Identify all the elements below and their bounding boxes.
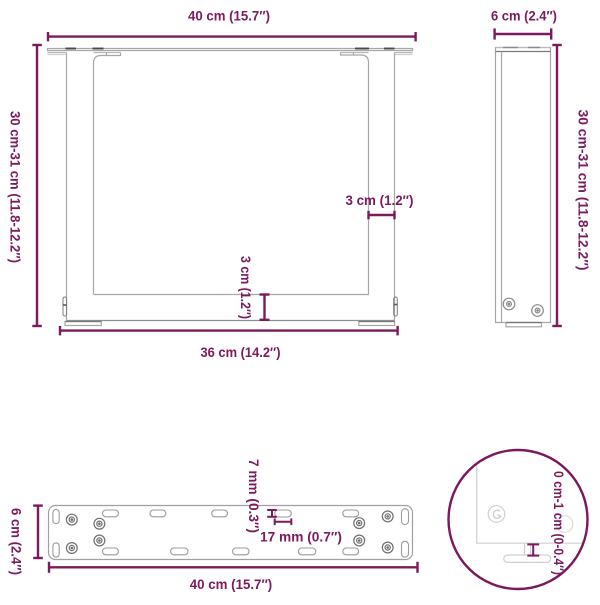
svg-text:40 cm (15.7″): 40 cm (15.7″) bbox=[188, 8, 270, 24]
svg-text:36 cm (14.2″): 36 cm (14.2″) bbox=[201, 344, 281, 360]
svg-text:6 cm (2.4″): 6 cm (2.4″) bbox=[9, 508, 25, 575]
svg-text:30 cm-31 cm (11.8-12.2″): 30 cm-31 cm (11.8-12.2″) bbox=[8, 111, 24, 263]
svg-text:40 cm (15.7″): 40 cm (15.7″) bbox=[190, 576, 273, 592]
svg-text:0 cm-1 cm (0-0.4″): 0 cm-1 cm (0-0.4″) bbox=[551, 471, 567, 575]
svg-text:17 mm (0.7″): 17 mm (0.7″) bbox=[260, 529, 342, 545]
svg-text:3 cm (1.2″): 3 cm (1.2″) bbox=[346, 192, 414, 208]
svg-text:3 cm (1.2″): 3 cm (1.2″) bbox=[238, 256, 254, 319]
svg-text:7 mm (0.3″): 7 mm (0.3″) bbox=[246, 459, 262, 533]
svg-text:30 cm-31 cm (11.8-12.2″): 30 cm-31 cm (11.8-12.2″) bbox=[576, 110, 592, 271]
svg-text:6 cm (2.4″): 6 cm (2.4″) bbox=[491, 8, 557, 24]
